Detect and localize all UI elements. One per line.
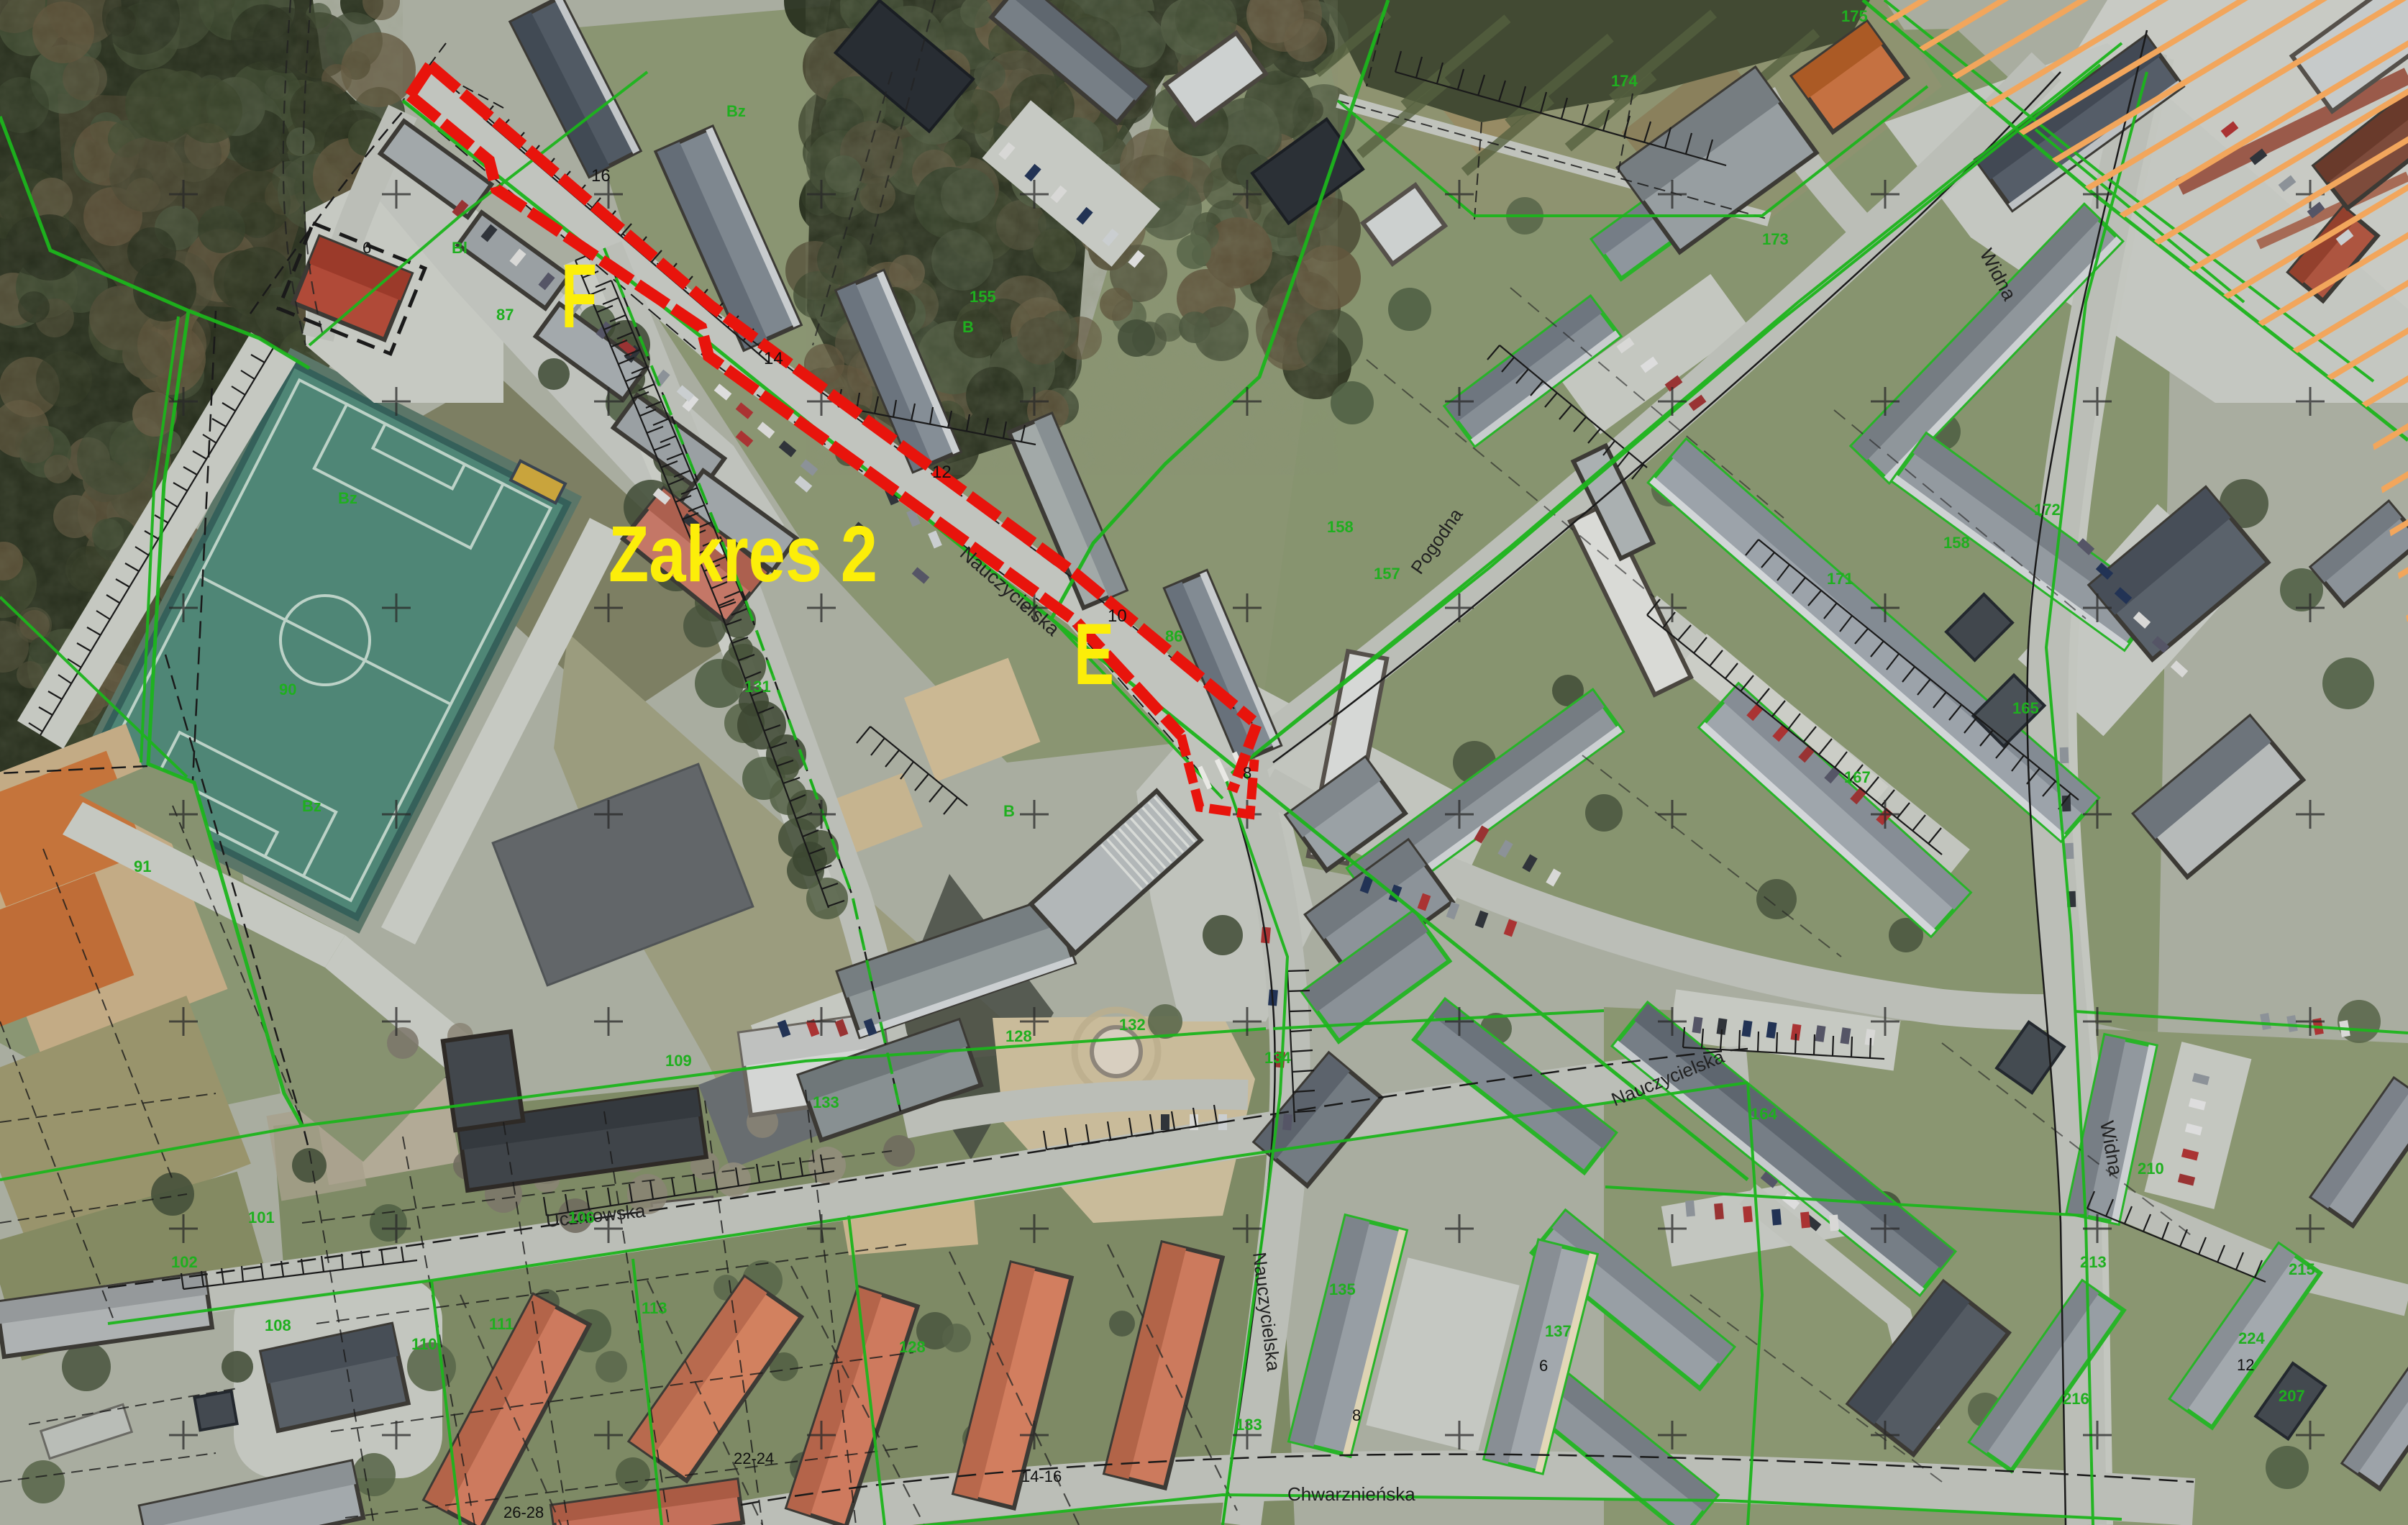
svg-text:133: 133 [1236, 1416, 1262, 1434]
svg-text:10: 10 [1108, 606, 1127, 626]
svg-text:171: 171 [1827, 570, 1853, 588]
svg-text:134: 134 [1264, 1049, 1291, 1067]
svg-text:128: 128 [899, 1338, 926, 1356]
svg-text:86: 86 [1165, 627, 1182, 645]
svg-text:110: 110 [411, 1335, 437, 1353]
svg-text:102: 102 [171, 1253, 198, 1271]
svg-text:B: B [1003, 802, 1015, 820]
svg-text:12: 12 [932, 463, 952, 482]
svg-text:Chwarznieńska: Chwarznieńska [1287, 1483, 1415, 1505]
svg-text:172: 172 [2034, 501, 2061, 519]
svg-text:22-24: 22-24 [734, 1449, 774, 1467]
svg-text:210: 210 [2138, 1160, 2164, 1178]
svg-text:16: 16 [591, 166, 611, 186]
svg-text:131: 131 [744, 678, 771, 696]
svg-text:113: 113 [642, 1299, 667, 1317]
svg-text:215: 215 [2289, 1260, 2315, 1278]
svg-text:Bz: Bz [302, 797, 321, 815]
svg-text:Bz: Bz [338, 489, 357, 507]
svg-text:108: 108 [265, 1316, 291, 1334]
svg-text:14: 14 [764, 349, 783, 368]
svg-text:216: 216 [2063, 1390, 2089, 1408]
svg-text:8: 8 [1352, 1406, 1361, 1424]
svg-text:26-28: 26-28 [503, 1503, 544, 1521]
svg-text:6: 6 [362, 239, 371, 257]
svg-text:8: 8 [1243, 764, 1251, 782]
svg-text:B: B [962, 318, 974, 336]
svg-text:164: 164 [1751, 1105, 1777, 1123]
svg-text:175: 175 [1841, 7, 1868, 25]
svg-text:207: 207 [2279, 1387, 2305, 1405]
svg-text:106: 106 [568, 1208, 595, 1226]
svg-text:173: 173 [1762, 230, 1789, 248]
svg-text:132: 132 [1119, 1016, 1146, 1034]
svg-text:14-16: 14-16 [1021, 1467, 1062, 1485]
svg-text:133: 133 [813, 1093, 839, 1111]
svg-text:90: 90 [279, 680, 296, 698]
svg-text:157: 157 [1374, 565, 1400, 583]
svg-text:158: 158 [1943, 534, 1970, 552]
svg-text:Bz: Bz [726, 102, 746, 120]
svg-text:137: 137 [1545, 1322, 1572, 1340]
svg-text:165: 165 [2012, 699, 2039, 717]
svg-text:Bl: Bl [452, 239, 468, 257]
svg-text:158: 158 [1327, 518, 1354, 536]
svg-text:167: 167 [1844, 768, 1871, 786]
svg-text:109: 109 [665, 1052, 692, 1070]
svg-text:213: 213 [2080, 1253, 2107, 1271]
svg-text:111: 111 [489, 1315, 514, 1333]
svg-text:12: 12 [2237, 1356, 2254, 1374]
svg-text:135: 135 [1329, 1280, 1356, 1298]
svg-text:155: 155 [970, 288, 996, 306]
svg-text:87: 87 [496, 306, 514, 324]
svg-text:224: 224 [2238, 1329, 2265, 1347]
svg-text:Zakres 2: Zakres 2 [608, 510, 877, 598]
svg-text:91: 91 [134, 857, 151, 875]
svg-text:101: 101 [248, 1208, 275, 1226]
svg-text:174: 174 [1611, 72, 1638, 90]
svg-text:F: F [561, 245, 597, 347]
svg-text:6: 6 [1539, 1357, 1548, 1375]
svg-text:128: 128 [1005, 1027, 1032, 1045]
